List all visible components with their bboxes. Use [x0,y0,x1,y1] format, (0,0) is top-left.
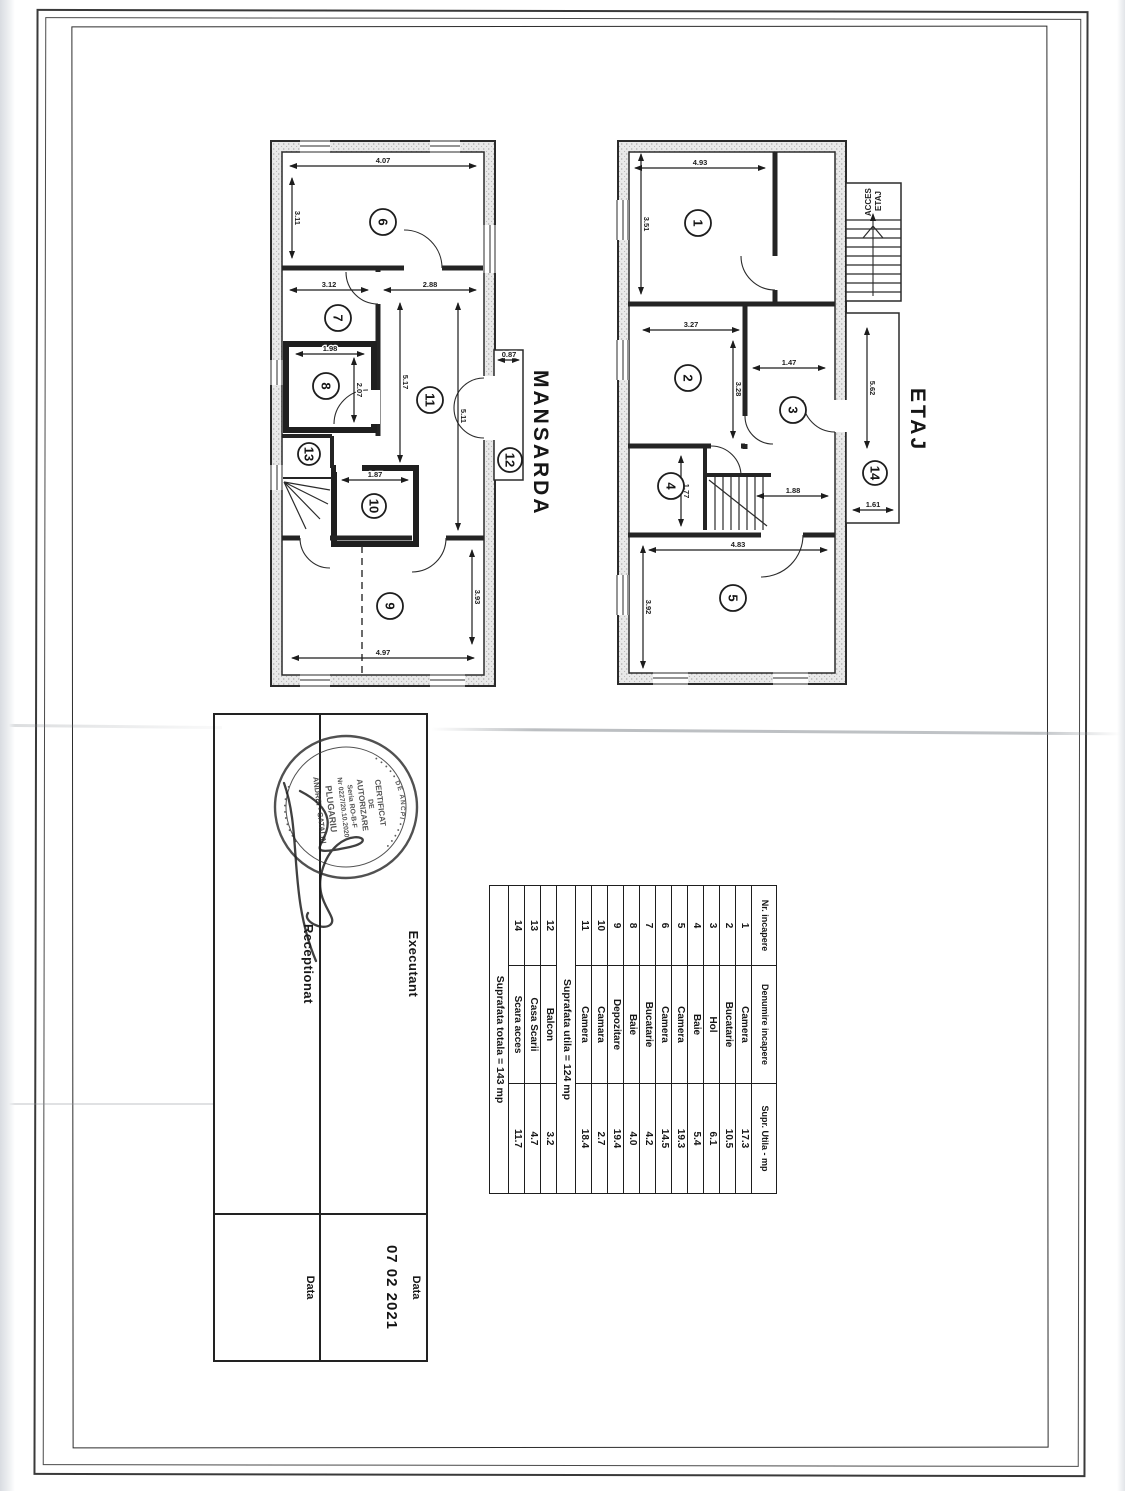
room-table: Nr. incapere Denumire incapere Supr. Uti… [489,885,777,1194]
dim-label: 1.47 [782,358,797,367]
table-row: 3Hol6.1 [704,886,720,1194]
table-row: 2Bucatarie10.5 [720,886,736,1194]
col-header-suprafata: Supr. Utila - mp [752,1084,777,1194]
dim-label: 1.87 [368,470,383,479]
dim-label: 2.88 [423,280,438,289]
floor-plan-etaj: ACCES ETAJ ETAJ [603,138,933,698]
table-row: 11Camera18.4 [576,886,592,1194]
svg-text:13: 13 [302,447,317,461]
room-circle: 9 [377,593,403,619]
dim-label: 3.12 [322,280,337,289]
table-rows-annex: 12Balcon3.213Casa Scarii4.714Scara acces… [509,886,557,1194]
svg-text:11: 11 [423,393,438,407]
dim-label: 1.98 [323,344,338,353]
dim-label: 3.51 [642,217,651,232]
svg-text:9: 9 [383,602,398,609]
svg-text:3: 3 [786,406,801,413]
room-circle: 8 [313,373,339,399]
svg-text:2: 2 [681,374,696,381]
room-circle: 13 [298,443,320,465]
dim-label: 4.97 [376,648,391,657]
table-row: 5Camera19.3 [672,886,688,1194]
dim-label: 4.93 [693,158,708,167]
data-label-executant: Data [410,1215,422,1360]
svg-text:1: 1 [691,219,706,226]
dim-label: 3.92 [644,600,653,615]
dim-label: 0.87 [502,350,517,359]
dim-label: 3.93 [473,590,482,605]
dim-label: 3.28 [734,382,743,397]
table-header-row: Nr. incapere Denumire incapere Supr. Uti… [752,886,777,1194]
fold-crease-minor [5,1103,213,1105]
room-circle: 12 [498,448,522,472]
scan-edge-shadow-right [1117,0,1125,1491]
table-row: 12Balcon3.2 [541,886,557,1194]
table-row: 14Scara acces11.7 [509,886,525,1194]
rotated-sheet: ACCES ETAJ ETAJ [0,0,1125,1491]
svg-text:14: 14 [868,466,883,481]
col-header-denumire: Denumire incapere [752,966,777,1084]
total-row: Suprafata totala = 143 mp [490,886,509,1194]
room-circle: 2 [675,365,701,391]
svg-text:8: 8 [319,382,334,389]
svg-text:4: 4 [664,482,679,490]
mansarda-label: MANSARDA [529,370,550,517]
room-circle: 14 [863,461,887,485]
room-circle: 11 [417,387,443,413]
svg-text:12: 12 [503,453,518,467]
data-value: 07 02 2021 [383,1215,400,1360]
table-row: 6Camera14.5 [656,886,672,1194]
dim-label: 4.83 [731,540,746,549]
dim-label: 5.11 [459,409,468,423]
table-row: 9Depozitare19.4 [608,886,624,1194]
dim-label: 5.62 [868,381,877,396]
subtotal-text: Suprafata utila = 124 mp [557,886,576,1194]
svg-text:5: 5 [726,594,741,601]
table-row: 8Baie4.0 [624,886,640,1194]
room-circle: 7 [325,305,351,331]
table-row: 4Baie5.4 [688,886,704,1194]
total-text: Suprafata totala = 143 mp [490,886,509,1194]
dim-label: 5.17 [401,375,410,390]
room-circle: 1 [685,210,711,236]
table-rows-main: 1Camera17.32Bucatarie10.53Hol6.14Baie5.4… [576,886,752,1194]
table-row: 1Camera17.3 [736,886,752,1194]
svg-text:7: 7 [331,314,346,321]
signature [248,775,398,985]
scan-edge-shadow-left [0,0,15,1491]
etaj-access-stairs: ACCES ETAJ [846,183,901,301]
dim-label: 2.07 [355,383,364,398]
col-header-nr: Nr. incapere [752,886,777,966]
dim-label: 1.61 [866,500,881,509]
room-circle: 5 [720,585,746,611]
svg-text:6: 6 [376,218,391,225]
dim-label: 1.88 [786,486,801,495]
dim-label: 3.11 [293,211,302,225]
table-row: 10Camara2.7 [592,886,608,1194]
room-circle: 6 [370,209,396,235]
data-label-receptionat: Data [304,1215,316,1360]
svg-text:10: 10 [367,499,382,513]
dim-label: 4.07 [376,156,391,165]
etaj-balcony [846,313,899,523]
subtotal-row: Suprafata utila = 124 mp [557,886,576,1194]
table-row: 7Bucatarie4.2 [640,886,656,1194]
etaj-label: ETAJ [906,388,929,452]
table-row: 13Casa Scarii4.7 [525,886,541,1194]
room-circle: 10 [362,494,386,518]
dim-label: 3.27 [684,320,699,329]
room-circle: 4 [658,473,684,499]
title-block: Executant Receptionat Data 07 02 2021 Da… [213,713,428,1362]
floor-plan-mansarda: MANSARDA [250,138,550,718]
room-circle: 3 [780,397,806,423]
